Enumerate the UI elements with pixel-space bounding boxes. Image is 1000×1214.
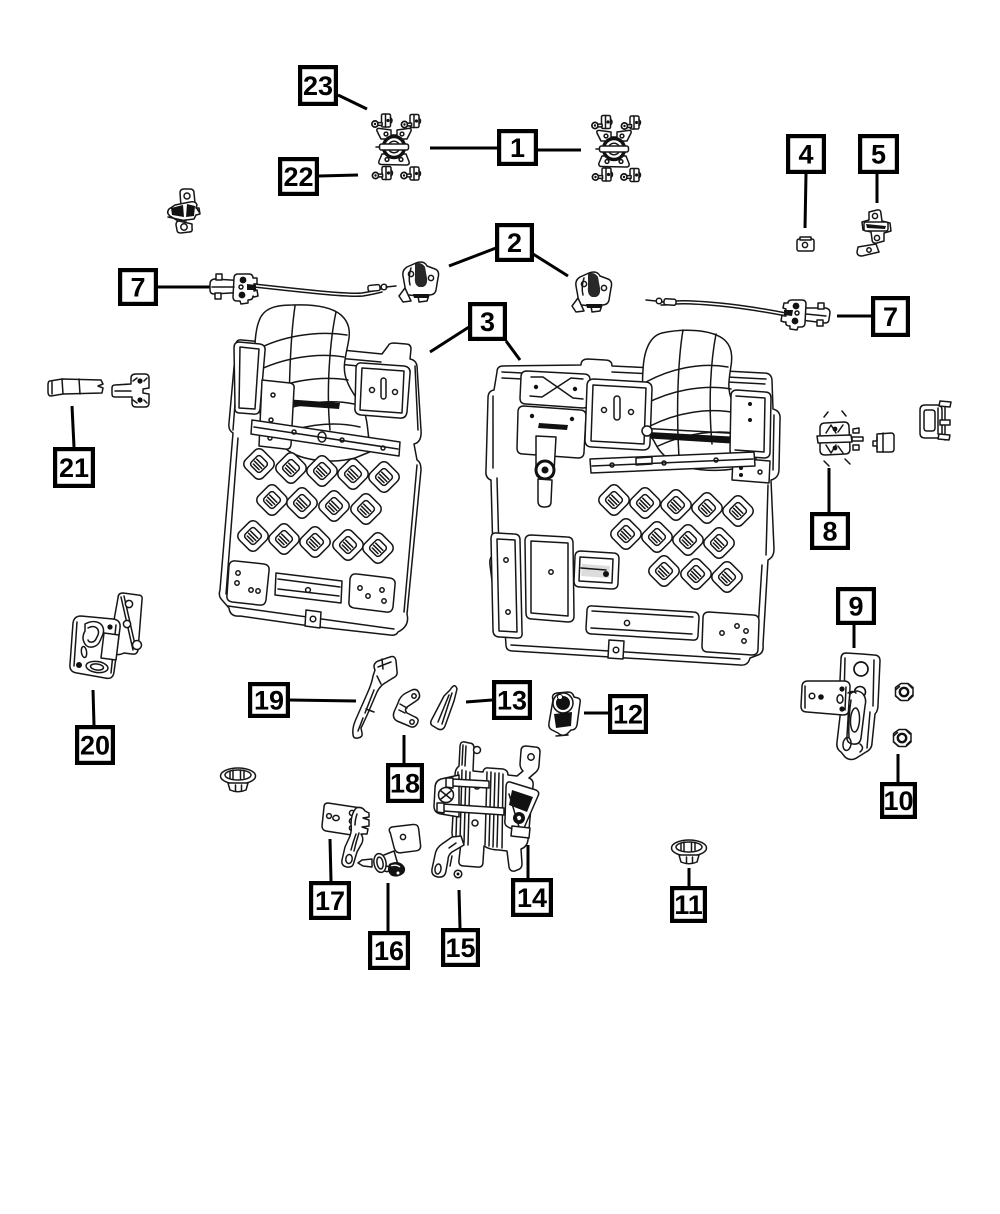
svg-text:13: 13 [497, 686, 527, 716]
svg-text:1: 1 [510, 133, 525, 163]
svg-text:22: 22 [283, 162, 313, 192]
svg-text:7: 7 [130, 273, 145, 303]
svg-text:18: 18 [390, 769, 420, 799]
svg-text:3: 3 [480, 307, 495, 337]
svg-text:7: 7 [883, 302, 898, 332]
svg-text:20: 20 [80, 731, 110, 761]
svg-text:15: 15 [445, 933, 475, 963]
svg-text:2: 2 [507, 228, 522, 258]
svg-text:11: 11 [674, 890, 703, 920]
svg-text:23: 23 [303, 71, 333, 101]
svg-text:16: 16 [374, 936, 404, 966]
svg-text:19: 19 [254, 686, 284, 716]
svg-text:17: 17 [315, 886, 345, 916]
svg-text:9: 9 [848, 592, 863, 622]
svg-text:12: 12 [613, 700, 643, 730]
svg-text:8: 8 [822, 517, 837, 547]
svg-text:5: 5 [871, 140, 886, 170]
svg-text:14: 14 [517, 883, 547, 913]
svg-text:4: 4 [798, 140, 813, 170]
svg-text:10: 10 [883, 786, 913, 816]
svg-text:21: 21 [59, 453, 89, 483]
